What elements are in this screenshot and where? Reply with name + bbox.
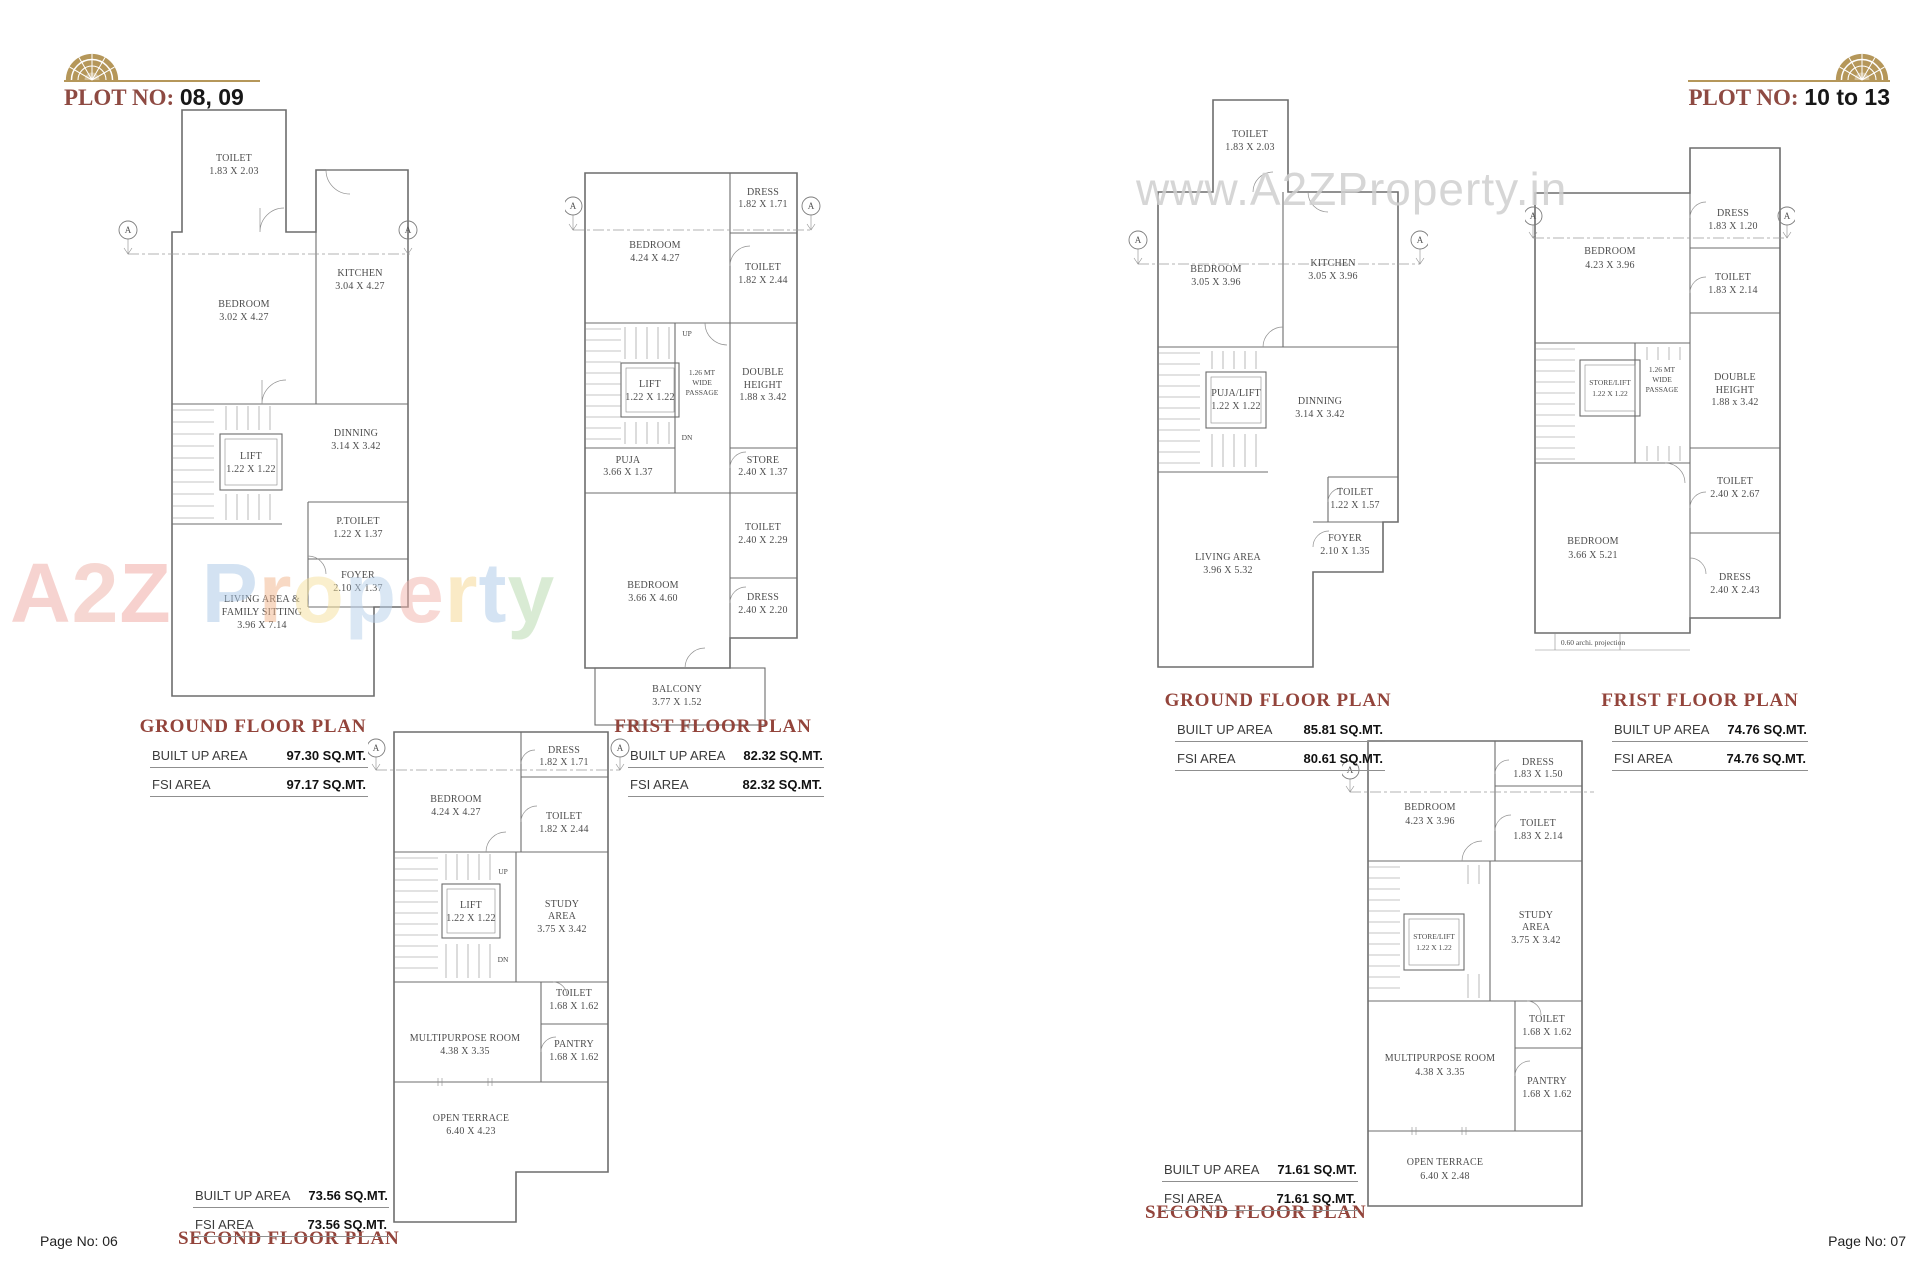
svg-text:DOUBLE: DOUBLE [742,367,784,378]
fsi-area-row: FSI AREA 80.61 SQ.MT. [1175,749,1385,771]
page-number-right: Page No: 07 [1810,1233,1906,1249]
title-ground-floor-right: GROUND FLOOR PLAN [1158,690,1398,712]
room-dress: DRESS 1.82 X 1.71 [539,745,588,768]
plan-second-floor-plots-10-13: A DRESS 1.83 X 1.50 BEDROOM 4.23 X 3.96 … [1342,726,1604,1226]
svg-text:A: A [808,201,815,211]
svg-text:1.88 x 3.42: 1.88 x 3.42 [739,392,786,403]
room-lift: LIFT 1.22 X 1.22 [625,379,674,403]
svg-text:3.05 X 3.96: 3.05 X 3.96 [1191,277,1240,288]
svg-text:6.40 X 2.48: 6.40 X 2.48 [1420,1171,1469,1182]
lift-shaft [442,884,500,938]
areas-ground-floor-right: BUILT UP AREA 85.81 SQ.MT. FSI AREA 80.6… [1175,720,1385,778]
svg-text:BEDROOM: BEDROOM [1404,802,1455,813]
lift-shaft-inner [447,889,495,933]
lift-shaft-inner [1409,919,1459,965]
svg-text:KITCHEN: KITCHEN [1310,258,1355,269]
svg-text:3.05 X 3.96: 3.05 X 3.96 [1308,271,1357,282]
svg-text:WIDE: WIDE [692,378,712,387]
areas-second-floor-left: BUILT UP AREA 73.56 SQ.MT. FSI AREA 73.5… [193,1186,389,1244]
svg-text:4.24 X 4.27: 4.24 X 4.27 [630,253,679,264]
title-first-floor-right: FRIST FLOOR PLAN [1600,690,1800,712]
header-left: PLOT NO: 08, 09 [64,50,264,111]
projection-note: 0.60 archi. projection [1561,638,1625,647]
svg-text:OPEN TERRACE: OPEN TERRACE [433,1113,509,1124]
svg-text:BEDROOM: BEDROOM [1567,536,1618,547]
svg-text:1.26 MT: 1.26 MT [1649,365,1676,374]
svg-text:LIVING AREA: LIVING AREA [1195,552,1261,563]
svg-text:TOILET: TOILET [1337,487,1373,498]
svg-text:3.66 X 4.60: 3.66 X 4.60 [628,593,677,604]
plot-label: PLOT NO: [1688,85,1798,110]
svg-text:A: A [1784,211,1791,221]
svg-text:A: A [570,201,577,211]
svg-text:4.23 X 3.96: 4.23 X 3.96 [1585,260,1634,271]
built-up-area-row: BUILT UP AREA 97.30 SQ.MT. [150,746,368,768]
svg-text:2.40 X 2.20: 2.40 X 2.20 [738,605,787,616]
room-dress-2: DRESS 2.40 X 2.20 [738,592,787,616]
room-pantry: PANTRY 1.68 X 1.62 [1522,1076,1571,1100]
svg-text:A: A [1417,235,1424,245]
svg-text:1.83 X 2.03: 1.83 X 2.03 [209,166,258,177]
svg-text:1.22 X 1.37: 1.22 X 1.37 [333,529,382,540]
svg-text:OPEN TERRACE: OPEN TERRACE [1407,1157,1483,1168]
room-bedroom-2: BEDROOM 3.66 X 5.21 [1567,536,1618,561]
label-passage: 1.26 MT WIDE PASSAGE [1646,365,1679,394]
fsi-area-row: FSI AREA 74.76 SQ.MT. [1612,749,1808,771]
svg-text:3.77 X 1.52: 3.77 X 1.52 [652,697,701,708]
svg-text:TOILET: TOILET [1715,272,1751,283]
svg-text:FOYER: FOYER [1328,533,1362,544]
built-up-area-row: BUILT UP AREA 73.56 SQ.MT. [193,1186,389,1208]
title-ground-floor-left: GROUND FLOOR PLAN [118,716,388,738]
room-study: STUDY AREA 3.75 X 3.42 [537,899,586,935]
svg-text:1.22 X 1.22: 1.22 X 1.22 [226,464,275,475]
areas-first-floor-right: BUILT UP AREA 74.76 SQ.MT. FSI AREA 74.7… [1612,720,1808,778]
svg-text:MULTIPURPOSE ROOM: MULTIPURPOSE ROOM [1385,1053,1496,1064]
title-first-floor-left: FRIST FLOOR PLAN [608,716,818,738]
built-up-area-row: BUILT UP AREA 85.81 SQ.MT. [1175,720,1385,742]
room-toilet-1: TOILET 1.82 X 2.44 [539,811,588,835]
svg-text:2.10 X 1.37: 2.10 X 1.37 [333,583,382,594]
plan-first-floor-plots-10-13: A A BEDROOM 4.23 X 3.96 DRESS 1.83 X 1.2… [1525,88,1795,673]
svg-text:1.22 X 1.22: 1.22 X 1.22 [1211,401,1260,412]
svg-text:LIFT: LIFT [460,900,482,911]
svg-text:TOILET: TOILET [1232,129,1268,140]
svg-text:1.83 X 2.03: 1.83 X 2.03 [1225,142,1274,153]
room-open-terrace: OPEN TERRACE 6.40 X 2.48 [1407,1157,1483,1182]
areas-first-floor-left: BUILT UP AREA 82.32 SQ.MT. FSI AREA 82.3… [628,746,824,804]
areas-ground-floor-left: BUILT UP AREA 97.30 SQ.MT. FSI AREA 97.1… [150,746,368,804]
svg-text:TOILET: TOILET [745,262,781,273]
room-toilet-2: TOILET 2.40 X 2.67 [1710,476,1759,500]
svg-text:BEDROOM: BEDROOM [629,240,680,251]
room-living-area: LIVING AREA & FAMILY SITTING 3.96 X 7.14 [222,594,302,631]
lift-shaft [1206,372,1266,428]
lift-shaft [220,434,282,490]
room-toilet: TOILET 1.83 X 2.03 [1225,129,1274,153]
fsi-area-row: FSI AREA 71.61 SQ.MT. [1162,1189,1358,1211]
svg-text:4.38 X 3.35: 4.38 X 3.35 [1415,1067,1464,1078]
plan-ground-floor-plots-08-09: A A TOILET 1.83 X 2.03 BEDROOM 3.02 X 4.… [112,104,422,719]
svg-text:2.40 X 1.37: 2.40 X 1.37 [738,467,787,478]
svg-text:LIFT: LIFT [240,451,262,462]
svg-text:3.02 X 4.27: 3.02 X 4.27 [219,312,268,323]
fsi-area-row: FSI AREA 73.56 SQ.MT. [193,1215,389,1237]
room-double-height: DOUBLE HEIGHT 1.88 x 3.42 [739,367,786,403]
room-dinning: DINNING 3.14 X 3.42 [1295,396,1344,420]
svg-text:A: A [1135,235,1142,245]
svg-text:A: A [1530,211,1537,221]
svg-text:MULTIPURPOSE ROOM: MULTIPURPOSE ROOM [410,1033,521,1044]
svg-text:1.22 X 1.22: 1.22 X 1.22 [625,392,674,403]
label-passage: 1.26 MT WIDE PASSAGE [686,368,719,397]
svg-text:PANTRY: PANTRY [1527,1076,1567,1087]
page-number-left: Page No: 06 [40,1233,118,1249]
svg-text:1.68 X 1.62: 1.68 X 1.62 [549,1001,598,1012]
svg-text:TOILET: TOILET [556,988,592,999]
room-toilet-1: TOILET 1.83 X 2.14 [1513,818,1562,842]
svg-text:1.22 X 1.22: 1.22 X 1.22 [446,913,495,924]
room-foyer: FOYER 2.10 X 1.35 [1320,533,1369,557]
svg-text:4.23 X 3.96: 4.23 X 3.96 [1405,816,1454,827]
svg-text:3.66 X 5.21: 3.66 X 5.21 [1568,550,1617,561]
svg-text:DRESS: DRESS [1719,572,1751,583]
room-dress-2: DRESS 2.40 X 2.43 [1710,572,1759,596]
svg-text:6.40 X 4.23: 6.40 X 4.23 [446,1126,495,1137]
plot-title: PLOT NO: 10 to 13 [1658,84,1890,111]
svg-text:2.40 X 2.67: 2.40 X 2.67 [1710,489,1759,500]
plot-label: PLOT NO: [64,85,174,110]
svg-text:BEDROOM: BEDROOM [1190,264,1241,275]
svg-text:1.82 X 2.44: 1.82 X 2.44 [539,824,588,835]
svg-text:3.75 X 3.42: 3.75 X 3.42 [1511,935,1560,946]
room-bedroom: BEDROOM 4.24 X 4.27 [430,794,481,818]
svg-text:DINNING: DINNING [334,428,378,439]
walls-partition [1158,192,1398,522]
svg-text:1.26 MT: 1.26 MT [689,368,716,377]
svg-text:1.83 X 1.50: 1.83 X 1.50 [1513,769,1562,780]
svg-text:3.96 X 5.32: 3.96 X 5.32 [1203,565,1252,576]
svg-text:LIFT: LIFT [639,379,661,390]
brochure-page: PLOT NO: 08, 09 PLOT NO: 10 to 13 A2ZPro… [0,0,1920,1271]
door-arcs [260,170,350,574]
svg-text:STUDY: STUDY [1519,910,1553,921]
lift-shaft-inner [1211,377,1261,423]
room-bedroom: BEDROOM 4.23 X 3.96 [1404,802,1455,827]
svg-text:1.82 X 2.44: 1.82 X 2.44 [738,275,787,286]
stairs-dn-label: DN [682,433,693,442]
lift-shaft [1580,360,1640,416]
room-toilet-2: TOILET 2.40 X 2.29 [738,522,787,546]
walls-partition [585,173,797,638]
svg-text:1.22 X 1.57: 1.22 X 1.57 [1330,500,1379,511]
walls-outer [1368,741,1582,1206]
room-study: STUDY AREA 3.75 X 3.42 [1511,910,1560,946]
section-marker-a: A A [119,221,417,254]
room-toilet-2: TOILET 1.68 X 1.62 [549,988,598,1012]
section-marker-a: A A [368,739,629,770]
svg-text:KITCHEN: KITCHEN [337,268,382,279]
svg-text:FOYER: FOYER [341,570,375,581]
plan-second-floor-plots-08-09: A A DRESS 1.82 X 1.71 BEDROOM 4.24 X 4.2… [368,722,630,1237]
svg-text:DRESS: DRESS [548,745,580,756]
lift-shaft [621,363,679,417]
walls-outer [394,732,608,1222]
svg-text:TOILET: TOILET [1717,476,1753,487]
room-toilet-2: TOILET 1.68 X 1.62 [1522,1014,1571,1038]
room-bedroom: BEDROOM 3.05 X 3.96 [1190,264,1241,288]
svg-text:DINNING: DINNING [1298,396,1342,407]
svg-text:FAMILY SITTING: FAMILY SITTING [222,607,302,618]
svg-text:3.96 X 7.14: 3.96 X 7.14 [237,620,286,631]
room-bedroom: BEDROOM 3.02 X 4.27 [218,299,269,323]
svg-text:4.38 X 3.35: 4.38 X 3.35 [440,1046,489,1057]
svg-text:TOILET: TOILET [216,153,252,164]
room-kitchen: KITCHEN 3.04 X 4.27 [335,268,384,292]
header-rule [1688,80,1890,82]
room-dress-1: DRESS 1.82 X 1.71 [738,187,787,210]
room-dinning: DINNING 3.14 X 3.42 [331,428,380,452]
room-living-area: LIVING AREA 3.96 X 5.32 [1195,552,1261,576]
room-double-height: DOUBLE HEIGHT 1.88 x 3.42 [1711,372,1758,408]
svg-text:BALCONY: BALCONY [652,684,702,695]
built-up-area-row: BUILT UP AREA 82.32 SQ.MT. [628,746,824,768]
svg-text:1.22 X 1.22: 1.22 X 1.22 [1416,943,1452,952]
svg-text:1.82 X 1.71: 1.82 X 1.71 [539,757,588,768]
svg-text:TOILET: TOILET [546,811,582,822]
fsi-area-row: FSI AREA 82.32 SQ.MT. [628,775,824,797]
svg-text:3.04 X 4.27: 3.04 X 4.27 [335,281,384,292]
room-bedroom-1: BEDROOM 4.24 X 4.27 [629,240,680,264]
header-rule [64,80,260,82]
room-foyer: FOYER 2.10 X 1.37 [333,570,382,594]
stairs-dn-label: DN [498,955,509,964]
svg-text:PASSAGE: PASSAGE [1646,385,1679,394]
stairs [172,406,270,520]
room-lift: LIFT 1.22 X 1.22 [446,900,495,924]
svg-text:2.40 X 2.29: 2.40 X 2.29 [738,535,787,546]
svg-text:1.68 X 1.62: 1.68 X 1.62 [1522,1027,1571,1038]
room-multipurpose: MULTIPURPOSE ROOM 4.38 X 3.35 [410,1033,521,1057]
svg-text:DRESS: DRESS [747,187,779,198]
svg-text:A: A [125,225,132,235]
svg-text:WIDE: WIDE [1652,375,1672,384]
svg-text:3.14 X 3.42: 3.14 X 3.42 [331,441,380,452]
svg-text:STORE/LIFT: STORE/LIFT [1589,378,1631,387]
svg-text:STORE: STORE [747,455,780,466]
svg-text:AREA: AREA [1522,922,1551,933]
room-kitchen: KITCHEN 3.05 X 3.96 [1308,258,1357,282]
fsi-area-row: FSI AREA 97.17 SQ.MT. [150,775,368,797]
svg-text:3.14 X 3.42: 3.14 X 3.42 [1295,409,1344,420]
room-toilet-2: TOILET 1.22 X 1.57 [1330,487,1379,511]
svg-text:BEDROOM: BEDROOM [1584,246,1635,257]
plot-number: 08, 09 [180,84,244,110]
areas-second-floor-right: BUILT UP AREA 71.61 SQ.MT. FSI AREA 71.6… [1162,1160,1358,1218]
room-bedroom-2: BEDROOM 3.66 X 4.60 [627,580,678,604]
svg-text:DRESS: DRESS [1522,757,1554,768]
room-puja-lift: PUJA/LIFT 1.22 X 1.22 [1211,388,1261,412]
lift-shaft-inner [225,439,277,485]
room-p-toilet: P.TOILET 1.22 X 1.37 [333,516,382,540]
svg-text:P.TOILET: P.TOILET [336,516,379,527]
svg-text:STUDY: STUDY [545,899,579,910]
svg-text:1.83 X 1.20: 1.83 X 1.20 [1708,221,1757,232]
room-pantry: PANTRY 1.68 X 1.62 [549,1039,598,1063]
lift-shaft-inner [626,368,674,412]
svg-text:TOILET: TOILET [745,522,781,533]
stairs-up-label: UP [682,329,692,338]
room-store: STORE 2.40 X 1.37 [738,455,787,478]
svg-text:1.68 X 1.62: 1.68 X 1.62 [549,1052,598,1063]
room-lift: LIFT 1.22 X 1.22 [226,451,275,475]
built-up-area-row: BUILT UP AREA 71.61 SQ.MT. [1162,1160,1358,1182]
svg-text:PANTRY: PANTRY [554,1039,594,1050]
svg-text:HEIGHT: HEIGHT [744,380,782,391]
room-dress-1: DRESS 1.83 X 1.20 [1708,208,1757,232]
plot-title: PLOT NO: 08, 09 [64,84,264,111]
svg-text:PUJA: PUJA [616,455,641,466]
svg-text:BEDROOM: BEDROOM [627,580,678,591]
lift-shaft [1404,914,1464,970]
svg-text:4.24 X 4.27: 4.24 X 4.27 [431,807,480,818]
door-arcs [1253,172,1342,547]
room-open-terrace: OPEN TERRACE 6.40 X 4.23 [433,1113,509,1137]
lift-shaft-inner [1585,365,1635,411]
svg-text:1.22 X 1.22: 1.22 X 1.22 [1592,389,1628,398]
svg-text:AREA: AREA [548,911,577,922]
svg-text:DOUBLE: DOUBLE [1714,372,1756,383]
room-store-lift: STORE/LIFT 1.22 X 1.22 [1413,932,1455,952]
brand-logo-icon [1834,50,1890,82]
header-right: PLOT NO: 10 to 13 [1658,50,1890,111]
svg-text:3.75 X 3.42: 3.75 X 3.42 [537,924,586,935]
svg-text:TOILET: TOILET [1529,1014,1565,1025]
svg-text:BEDROOM: BEDROOM [218,299,269,310]
room-puja: PUJA 3.66 X 1.37 [603,455,652,478]
svg-text:DRESS: DRESS [747,592,779,603]
svg-text:A: A [373,743,380,753]
svg-text:2.40 X 2.43: 2.40 X 2.43 [1710,585,1759,596]
svg-text:HEIGHT: HEIGHT [1716,385,1754,396]
room-toilet: TOILET 1.83 X 2.03 [209,153,258,177]
room-dress: DRESS 1.83 X 1.50 [1513,757,1562,780]
svg-text:1.88 x 3.42: 1.88 x 3.42 [1711,397,1758,408]
svg-text:A: A [405,225,412,235]
svg-text:BEDROOM: BEDROOM [430,794,481,805]
room-toilet-1: TOILET 1.82 X 2.44 [738,262,787,286]
svg-text:1.83 X 2.14: 1.83 X 2.14 [1513,831,1562,842]
room-balcony: BALCONY 3.77 X 1.52 [652,684,702,708]
room-store-lift: STORE/LIFT 1.22 X 1.22 [1589,378,1631,398]
plan-first-floor-plots-08-09: A A BEDROOM 4.24 X 4.27 DRESS 1.82 X 1.7… [565,148,825,738]
brand-logo-icon [64,50,120,82]
svg-text:A: A [617,743,624,753]
plan-ground-floor-plots-10-13: A A TOILET 1.83 X 2.03 BEDROOM 3.05 X 3.… [1128,92,1428,692]
svg-text:STORE/LIFT: STORE/LIFT [1413,932,1455,941]
svg-text:PUJA/LIFT: PUJA/LIFT [1211,388,1261,399]
plot-number: 10 to 13 [1804,84,1890,110]
svg-text:2.10 X 1.35: 2.10 X 1.35 [1320,546,1369,557]
stairs-up-label: UP [498,867,508,876]
walls-outer [1158,100,1398,667]
svg-text:1.83 X 2.14: 1.83 X 2.14 [1708,285,1757,296]
built-up-area-row: BUILT UP AREA 74.76 SQ.MT. [1612,720,1808,742]
room-multipurpose: MULTIPURPOSE ROOM 4.38 X 3.35 [1385,1053,1496,1078]
room-bedroom-1: BEDROOM 4.23 X 3.96 [1584,246,1635,271]
svg-text:1.82 X 1.71: 1.82 X 1.71 [738,199,787,210]
svg-text:PASSAGE: PASSAGE [686,388,719,397]
svg-text:DRESS: DRESS [1717,208,1749,219]
svg-text:3.66 X 1.37: 3.66 X 1.37 [603,467,652,478]
svg-text:LIVING AREA &: LIVING AREA & [224,594,300,605]
section-marker-a: A A [1129,231,1428,264]
room-toilet-1: TOILET 1.83 X 2.14 [1708,272,1757,296]
svg-text:TOILET: TOILET [1520,818,1556,829]
svg-text:1.68 X 1.62: 1.68 X 1.62 [1522,1089,1571,1100]
